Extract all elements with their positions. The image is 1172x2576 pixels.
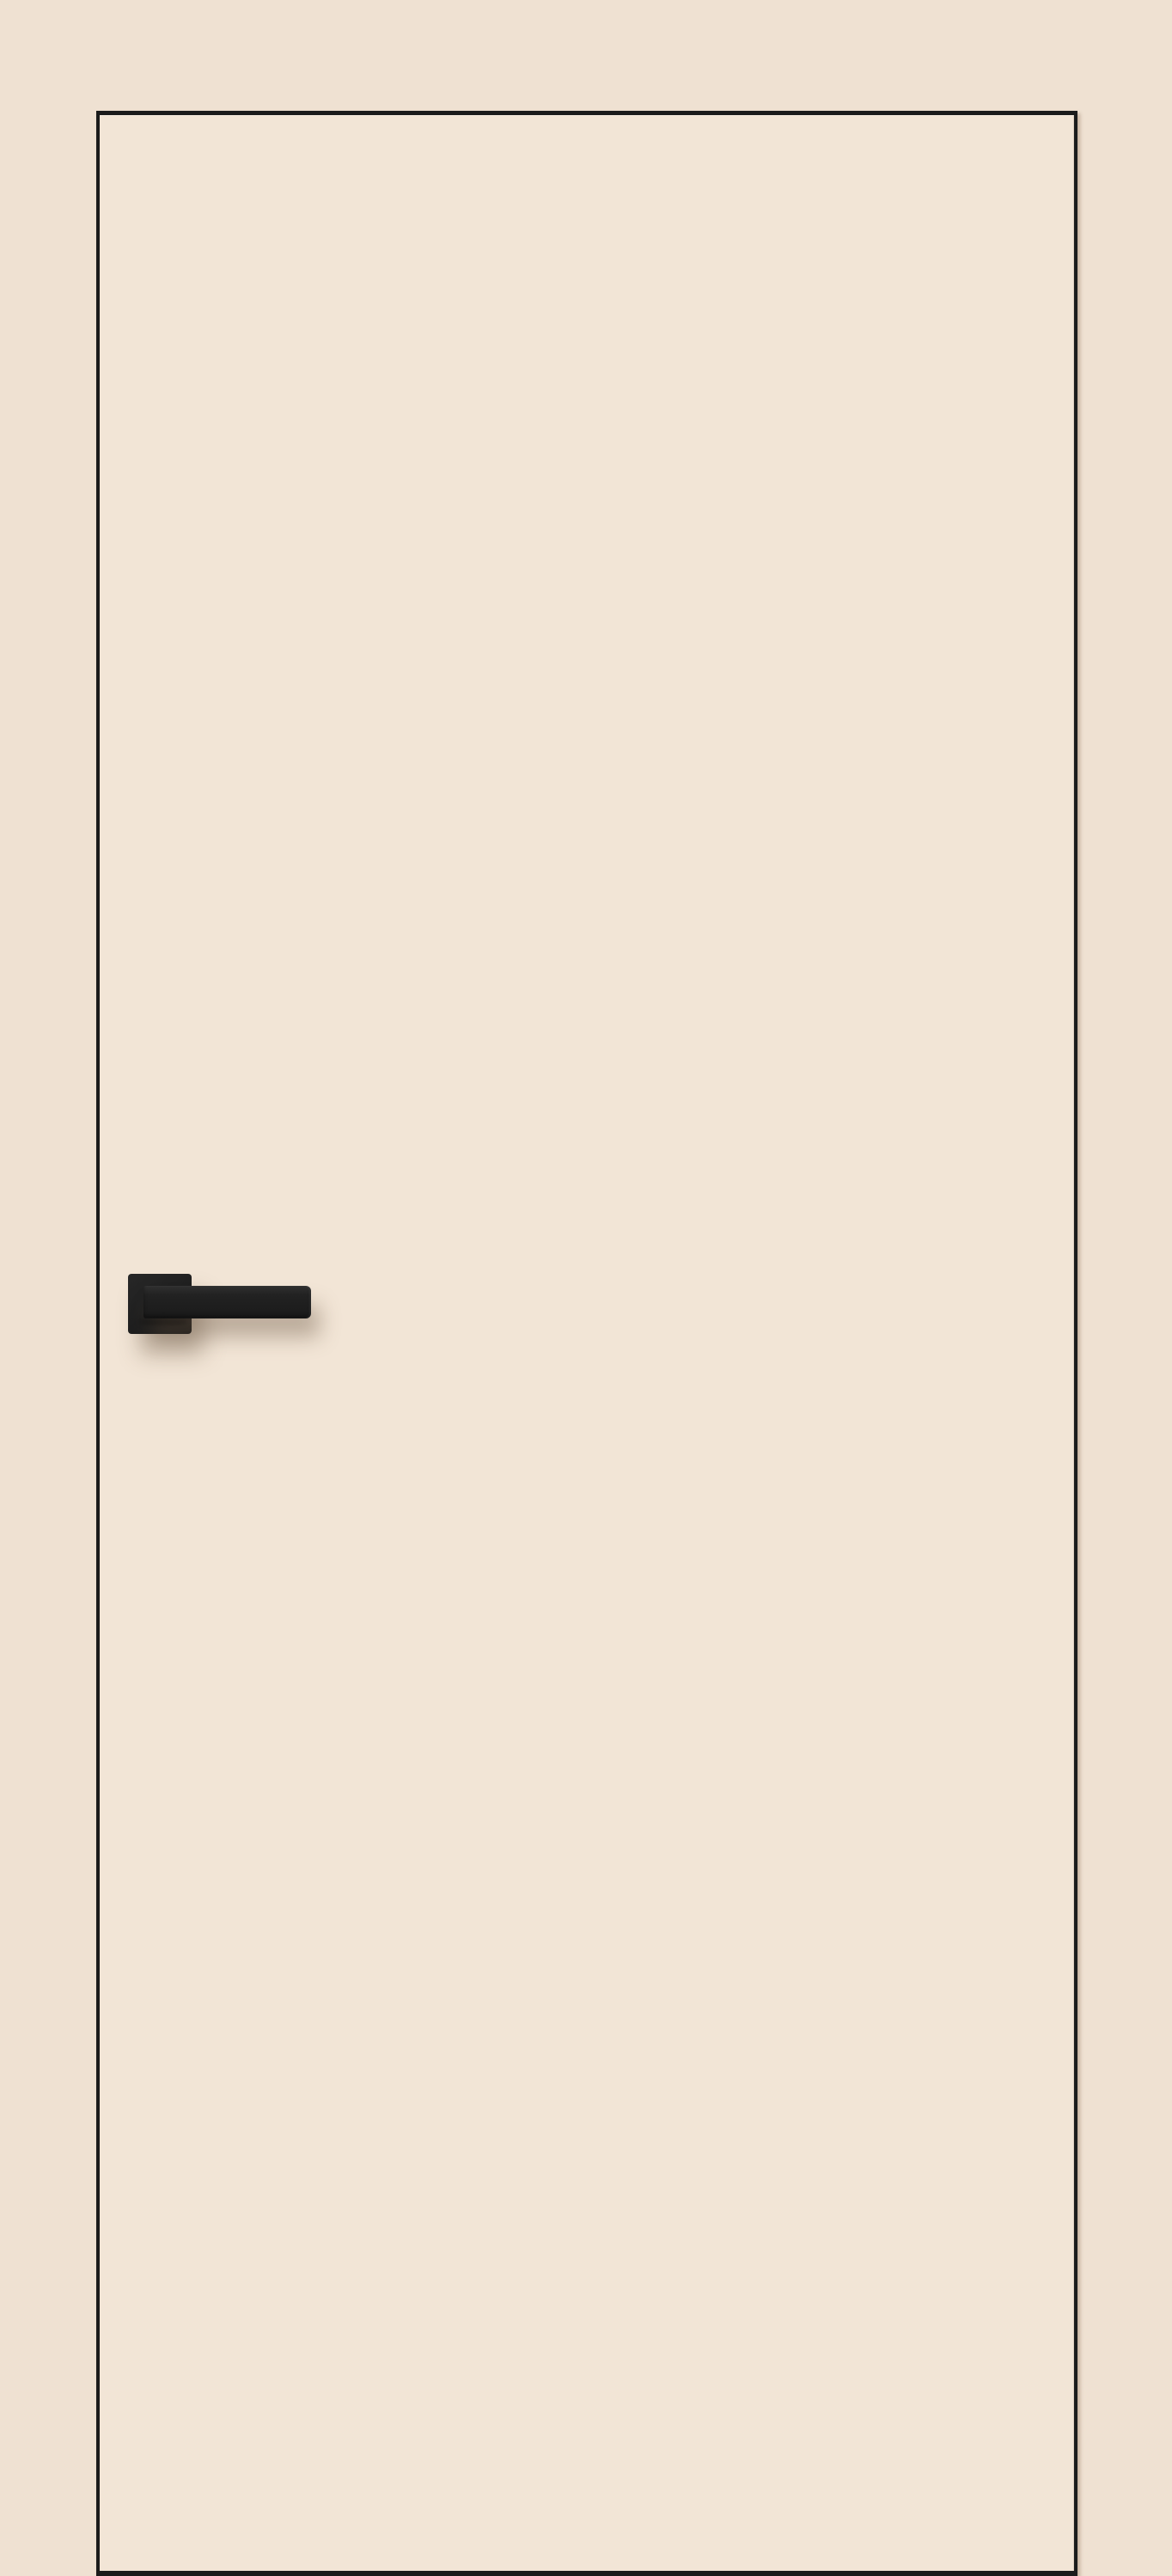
handle-lever [143, 1286, 311, 1318]
door-leaf [96, 111, 1077, 2576]
product-photo-background [0, 0, 1172, 2576]
door-handle [100, 115, 1074, 2571]
